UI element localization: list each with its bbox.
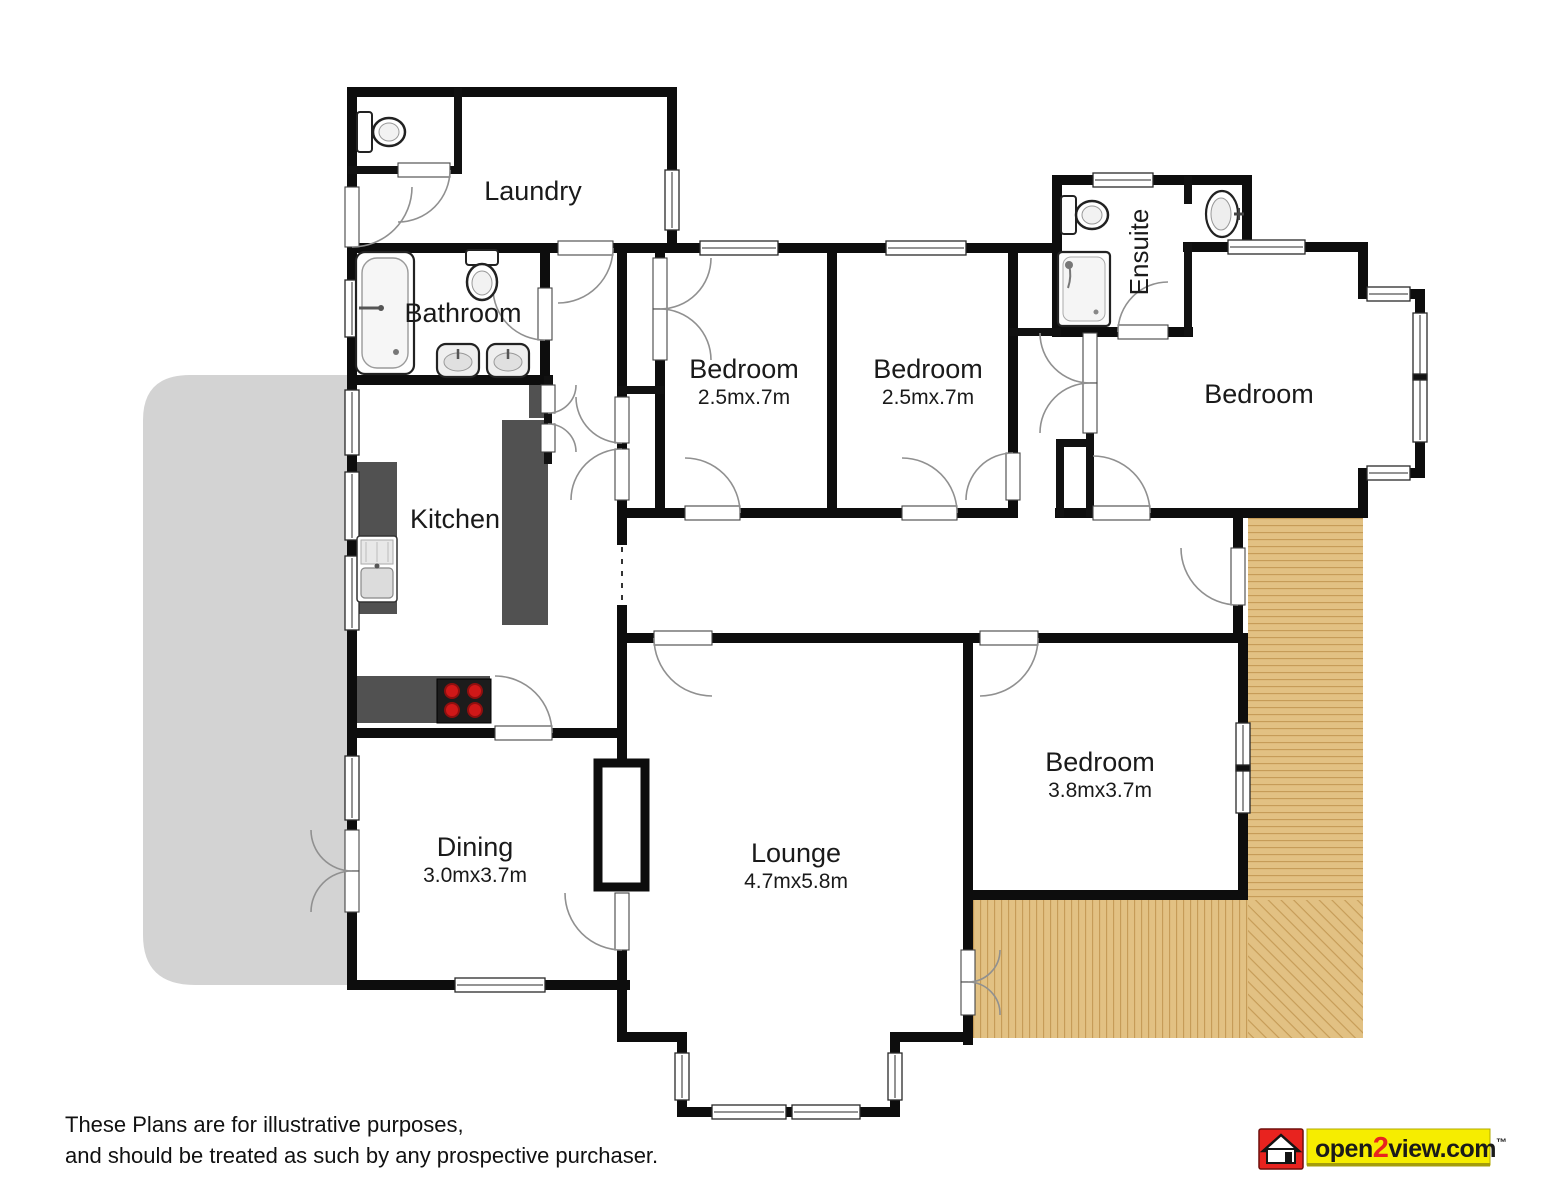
open2view-logo: open2view.com™ bbox=[1259, 1129, 1506, 1169]
door-french-master-a bbox=[1083, 333, 1097, 383]
open-doorway-kitchen-hall bbox=[616, 545, 628, 605]
floorplan-page: Laundry Bathroom Kitchen Bedroom 2.5mx.7… bbox=[0, 0, 1564, 1200]
window-lounge-bay-bottom-2 bbox=[792, 1105, 860, 1119]
fixture-shower-ensuite bbox=[1058, 252, 1110, 326]
door-patio-french-b bbox=[345, 871, 359, 912]
window-kitchen-west-1 bbox=[345, 390, 359, 455]
label-lounge: Lounge bbox=[751, 838, 841, 868]
deck-corner bbox=[1248, 900, 1363, 1038]
logo-text-open: open bbox=[1315, 1135, 1373, 1163]
bedroom-band-floor bbox=[620, 244, 1013, 644]
door-ensuite bbox=[1118, 325, 1168, 339]
door-bedroom3 bbox=[980, 631, 1038, 645]
door-deck-french-a bbox=[961, 950, 975, 982]
door-deck-french-b bbox=[961, 982, 975, 1015]
door-cupboard-east-1 bbox=[615, 397, 629, 443]
disclaimer-line-1: These Plans are for illustrative purpose… bbox=[65, 1112, 464, 1137]
deck-bottom-strip bbox=[973, 900, 1248, 1038]
logo-text-rest: view.com bbox=[1388, 1135, 1496, 1163]
lounge-bay-floor bbox=[677, 1037, 900, 1117]
window-bedroom1-north bbox=[700, 241, 778, 255]
patio-paved-area bbox=[143, 375, 358, 985]
closet-nook-floor bbox=[1013, 244, 1057, 338]
window-master-bay-top bbox=[1367, 287, 1410, 301]
window-master-bay-east bbox=[1413, 313, 1427, 442]
dims-bedroom-2: 2.5mx.7m bbox=[882, 386, 974, 409]
door-lounge bbox=[654, 631, 712, 645]
label-kitchen: Kitchen bbox=[410, 504, 500, 534]
floorplan-canvas: Laundry Bathroom Kitchen Bedroom 2.5mx.7… bbox=[0, 0, 1564, 1200]
door-deck-hall bbox=[1231, 548, 1245, 605]
label-ensuite: Ensuite bbox=[1124, 209, 1154, 296]
fixture-kitchen-sink bbox=[357, 536, 397, 602]
fireplace bbox=[598, 763, 645, 887]
door-wc-closet bbox=[398, 163, 450, 177]
door-bedroom2-side bbox=[1006, 453, 1020, 500]
door-bedroom2 bbox=[902, 506, 957, 520]
fixture-basin-bathroom-2 bbox=[487, 344, 529, 377]
logo-text-two: 2 bbox=[1373, 1132, 1389, 1164]
disclaimer: These Plans are for illustrative purpose… bbox=[65, 1112, 658, 1168]
door-cupboard-west-1 bbox=[541, 385, 555, 413]
window-bedroom2-north bbox=[886, 241, 966, 255]
door-laundry-exterior bbox=[345, 187, 359, 247]
window-dining-south bbox=[455, 978, 545, 992]
fixture-hob bbox=[437, 679, 491, 723]
door-bathroom bbox=[538, 288, 552, 340]
window-ensuite-north bbox=[1093, 173, 1153, 187]
logo-bar-shadow bbox=[1307, 1163, 1490, 1167]
door-wardrobe-bedroom1-a bbox=[653, 258, 667, 309]
window-master-bay-bottom bbox=[1367, 466, 1410, 480]
window-laundry-east bbox=[665, 170, 679, 230]
label-bathroom: Bathroom bbox=[404, 298, 521, 328]
label-bedroom-2: Bedroom bbox=[873, 354, 983, 384]
disclaimer-line-2: and should be treated as such by any pro… bbox=[65, 1143, 658, 1168]
window-bedroom3-east bbox=[1236, 723, 1250, 813]
dims-lounge: 4.7mx5.8m bbox=[744, 870, 848, 893]
label-bedroom-3: Bedroom bbox=[1045, 747, 1155, 777]
window-lounge-bay-bottom-1 bbox=[712, 1105, 786, 1119]
door-dining bbox=[615, 893, 629, 950]
dims-dining: 3.0mx3.7m bbox=[423, 864, 527, 887]
door-wardrobe-bedroom1-b bbox=[653, 309, 667, 360]
dims-bedroom-3: 3.8mx3.7m bbox=[1048, 779, 1152, 802]
window-lounge-bay-right bbox=[888, 1053, 902, 1100]
fixture-basin-bathroom-1 bbox=[437, 344, 479, 377]
window-master-north bbox=[1228, 240, 1305, 254]
door-master bbox=[1093, 506, 1150, 520]
door-patio-french-a bbox=[345, 830, 359, 871]
dims-bedroom-1: 2.5mx.7m bbox=[698, 386, 790, 409]
label-bedroom-master: Bedroom bbox=[1204, 379, 1314, 409]
label-laundry: Laundry bbox=[484, 176, 582, 206]
door-cupboard-east-2 bbox=[615, 449, 629, 500]
logo-text: open2view.com™ bbox=[1315, 1132, 1506, 1164]
deck-right-strip bbox=[1248, 518, 1363, 900]
door-french-master-b bbox=[1083, 383, 1097, 433]
window-dining-west bbox=[345, 756, 359, 820]
door-bedroom1 bbox=[685, 506, 740, 520]
door-cupboard-west-2 bbox=[541, 424, 555, 452]
label-dining: Dining bbox=[437, 832, 514, 862]
label-bedroom-1: Bedroom bbox=[689, 354, 799, 384]
logo-text-tm: ™ bbox=[1496, 1137, 1507, 1149]
door-laundry-hall bbox=[558, 241, 613, 255]
window-lounge-bay-left bbox=[675, 1053, 689, 1100]
fixture-toilet-bathroom bbox=[466, 250, 498, 300]
window-kitchen-west-2 bbox=[345, 472, 359, 540]
door-kitchen bbox=[495, 726, 552, 740]
